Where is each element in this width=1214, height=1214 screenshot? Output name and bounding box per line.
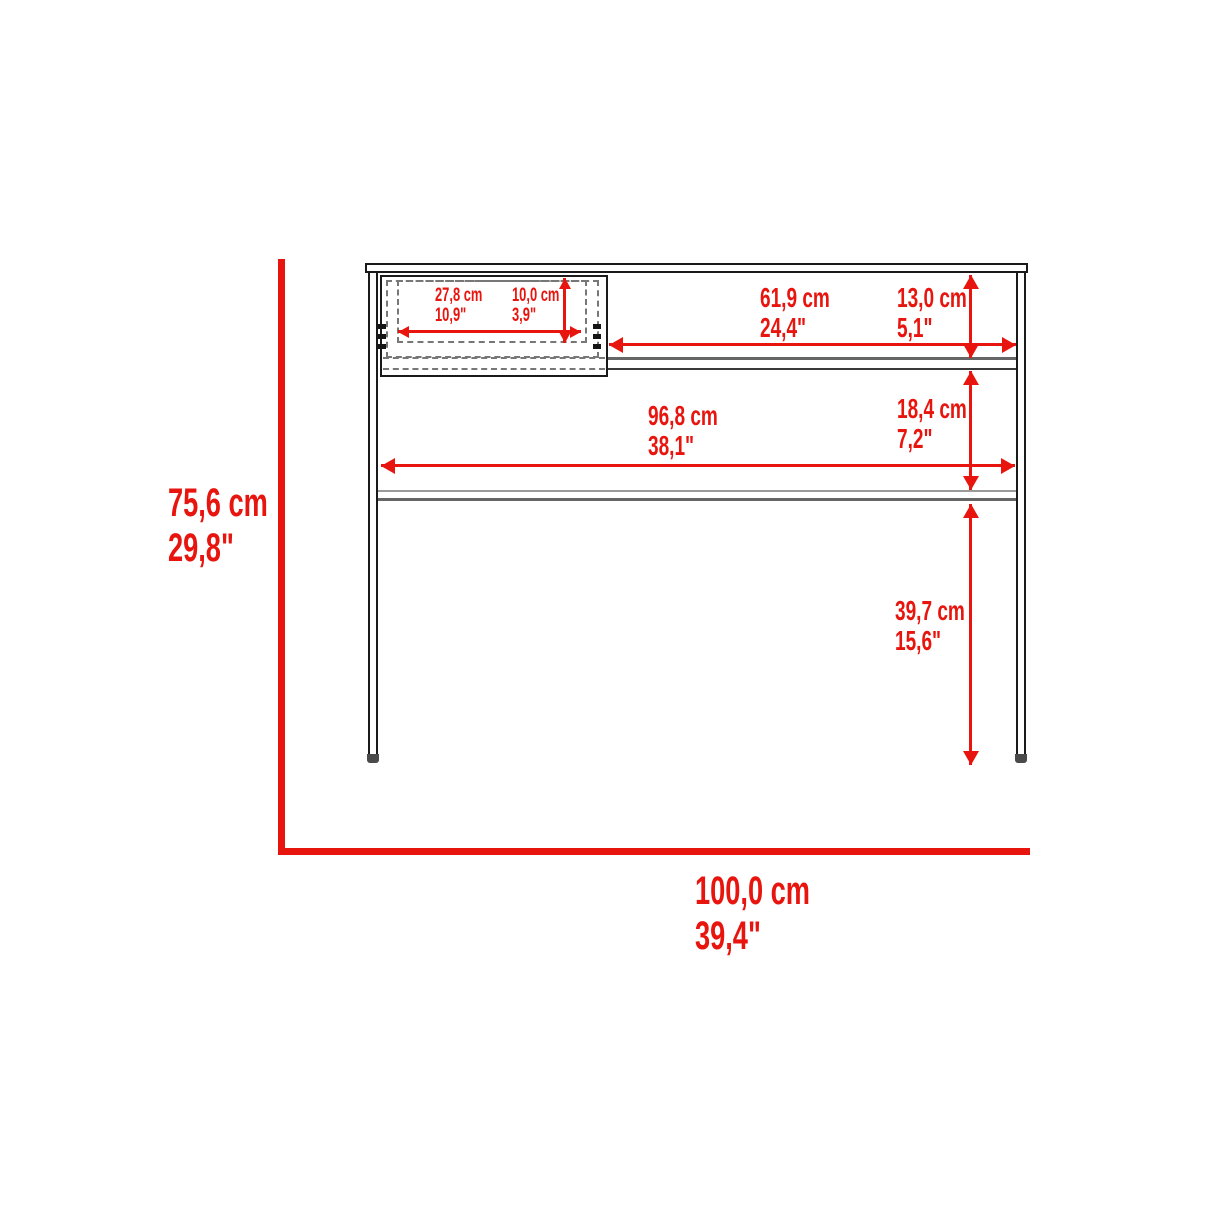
dim-label-inner-width: 96,8 cm 38,1" <box>648 401 718 461</box>
dim-label-overall-width: 100,0 cm 39,4" <box>695 869 810 959</box>
dim-label-top-clearance: 13,0 cm 5,1" <box>897 283 967 343</box>
overall-height-extent-line <box>278 259 285 848</box>
dim-value-cm: 96,8 cm <box>648 401 718 431</box>
dimension-diagram: 75,6 cm 29,8" 100,0 cm 39,4" 61,9 cm 24,… <box>0 0 1214 1214</box>
dim-value-in: 38,1" <box>648 431 718 461</box>
left-leg-foot <box>367 754 379 763</box>
hidden-shelf-edge-1 <box>383 357 605 359</box>
right-leg-foot <box>1015 754 1027 763</box>
dim-arrow-shelf-clearance <box>969 371 972 490</box>
dim-label-leg-clearance: 39,7 cm 15,6" <box>895 596 965 656</box>
dim-value-cm: 39,7 cm <box>895 596 965 626</box>
upper-shelf-bottom-edge <box>606 368 1016 370</box>
desk-top <box>365 263 1028 273</box>
dim-value-in: 24,4" <box>760 313 830 343</box>
desk-right-leg <box>1016 273 1026 755</box>
dim-arrow-top-clearance <box>969 275 972 358</box>
dim-label-shelf-clearance: 18,4 cm 7,2" <box>897 394 967 454</box>
dim-arrow-leg-clearance <box>969 504 972 765</box>
dim-arrow-inner-width <box>381 464 1015 467</box>
dim-value-cm: 75,6 cm <box>168 481 268 526</box>
dim-value-in: 10,9" <box>435 306 482 326</box>
dim-label-drawer-width: 27,8 cm 10,9" <box>435 286 482 326</box>
dim-value-in: 7,2" <box>897 424 967 454</box>
dim-label-drawer-height: 10,0 cm 3,9" <box>512 286 559 326</box>
dim-value-in: 15,6" <box>895 626 965 656</box>
dim-value-in: 29,8" <box>168 526 268 571</box>
overall-width-extent-line <box>278 848 1030 855</box>
drawer-slide-right <box>593 324 601 352</box>
dim-value-cm: 61,9 cm <box>760 283 830 313</box>
drawer-slide-left <box>378 324 386 352</box>
dim-value-in: 39,4" <box>695 914 810 959</box>
dim-value-in: 5,1" <box>897 313 967 343</box>
dim-label-overall-height: 75,6 cm 29,8" <box>168 481 268 571</box>
dim-label-open-shelf-width: 61,9 cm 24,4" <box>760 283 830 343</box>
dim-value-cm: 10,0 cm <box>512 286 559 306</box>
upper-shelf-top-edge <box>606 357 1016 360</box>
dim-value-cm: 18,4 cm <box>897 394 967 424</box>
dim-value-in: 3,9" <box>512 306 559 326</box>
dim-arrow-drawer-height <box>563 278 566 343</box>
hidden-shelf-edge-2 <box>383 368 605 370</box>
lower-shelf-top-edge <box>378 490 1016 492</box>
lower-shelf-bottom-edge <box>378 498 1016 501</box>
dim-value-cm: 100,0 cm <box>695 869 810 914</box>
dim-arrow-open-shelf-width <box>609 343 1016 346</box>
dim-arrow-drawer-width <box>398 330 581 333</box>
desk-left-leg <box>368 273 378 755</box>
dim-value-cm: 27,8 cm <box>435 286 482 306</box>
dim-value-cm: 13,0 cm <box>897 283 967 313</box>
